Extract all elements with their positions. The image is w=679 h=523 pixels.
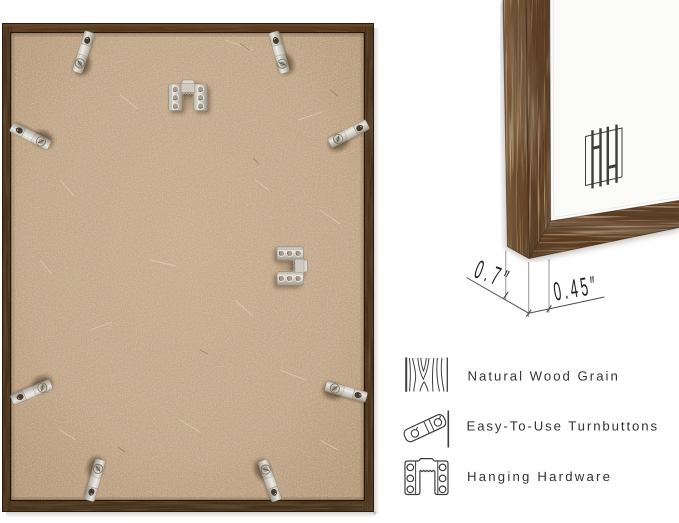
svg-text:Natural Wood Grain: Natural Wood Grain (468, 369, 620, 384)
svg-text:Easy-To-Use Turnbuttons: Easy-To-Use Turnbuttons (467, 419, 660, 434)
svg-text:Hanging Hardware: Hanging Hardware (467, 469, 612, 484)
